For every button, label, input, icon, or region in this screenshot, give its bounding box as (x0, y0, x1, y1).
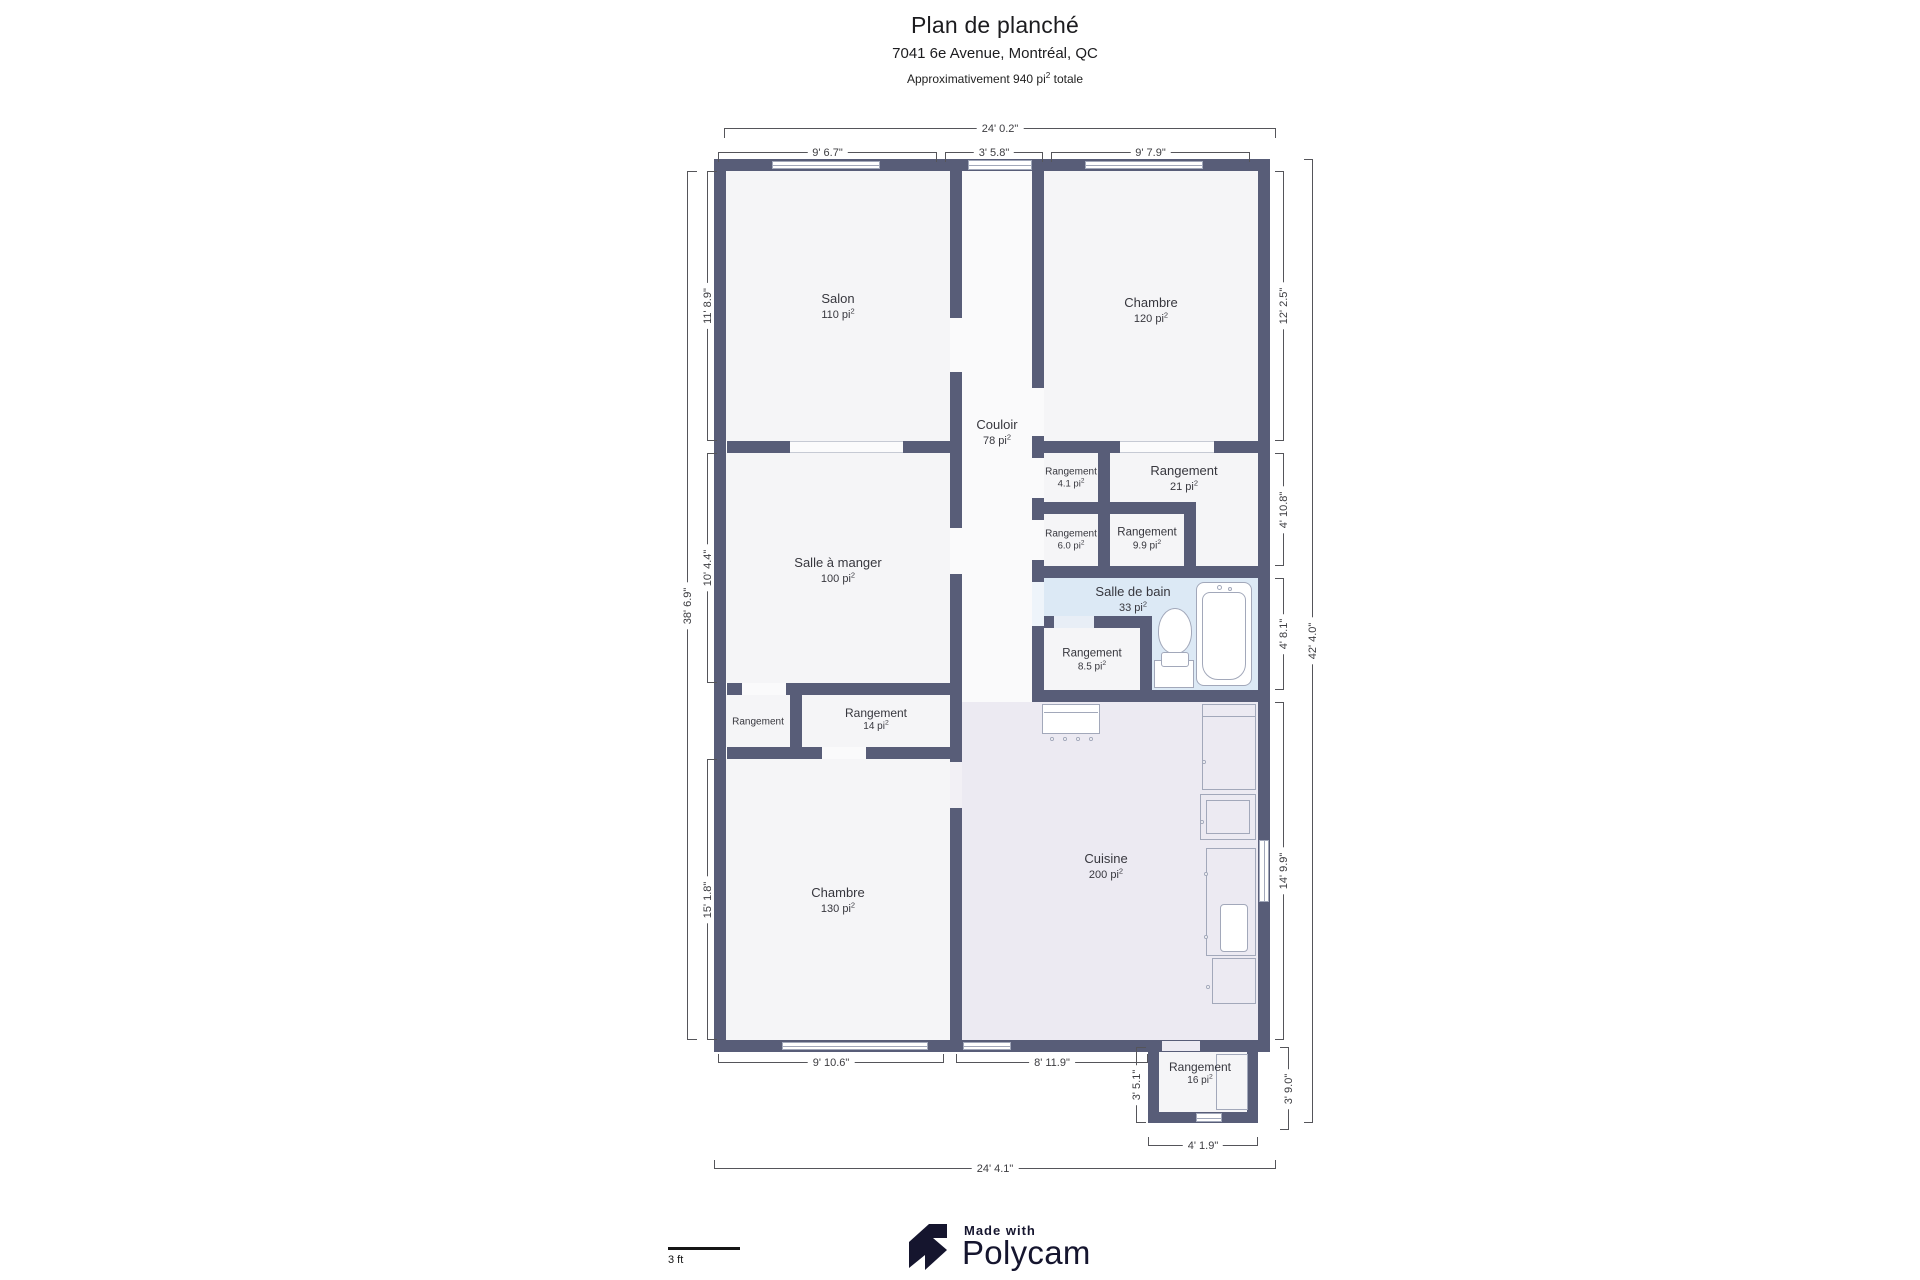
door-rangement-14 (822, 747, 866, 759)
door-rangement-4-1 (1032, 458, 1044, 498)
room-label-salle-a-manger: Salle à manger 100 pi2 (794, 555, 881, 585)
wall-rangement-9-9-haut (1110, 502, 1184, 514)
room-area: 110 pi2 (821, 309, 854, 321)
room-name: Rangement (1150, 463, 1217, 478)
window-cuisine-droite (1259, 840, 1269, 902)
room-area: 100 pi2 (794, 573, 881, 585)
dim-bottom-chambre: 9' 10.6" (718, 1062, 944, 1063)
cabinet-knob-5 (1206, 985, 1210, 989)
dimension-label: 9' 10.6" (808, 1057, 855, 1069)
toilet-tank (1161, 652, 1189, 667)
dim-bottom-total: 24' 4.1" (714, 1168, 1276, 1169)
opening-salon-salle-a-manger (790, 441, 903, 453)
scale-label: 3 ft (668, 1254, 683, 1266)
stove-knob-3 (1076, 737, 1080, 741)
door-salle-a-manger (950, 528, 962, 574)
room-area: 9.9 pi2 (1117, 541, 1176, 552)
room-name: Rangement (1045, 467, 1097, 478)
window-chambre-haut (1085, 161, 1203, 169)
room-label-salle-de-bain: Salle de bain 33 pi2 (1095, 584, 1170, 614)
room-label-rangement-4-1: Rangement 4.1 pi2 (1045, 467, 1097, 490)
passage-cuisine-annexe (1162, 1041, 1200, 1051)
door-rangement-gauche (742, 683, 786, 695)
wall-left (714, 159, 726, 1052)
stove-detail-line (1044, 712, 1098, 713)
room-name: Salle à manger (794, 555, 881, 570)
room-name: Rangement (1117, 527, 1176, 539)
wall-rangement-4-1-bas (1044, 502, 1110, 514)
dimension-label: 4' 8.1" (1278, 614, 1290, 654)
room-area: 4.1 pi2 (1045, 479, 1097, 490)
room-name: Chambre (811, 885, 864, 900)
wall-salle-de-bain-haut (1032, 566, 1258, 578)
wall-rangement-divider (790, 695, 802, 747)
dim-top-salon: 9' 6.7" (718, 152, 937, 153)
dimension-label: 9' 7.9" (1130, 147, 1170, 159)
door-annexe (1196, 1113, 1222, 1122)
toilet-bowl (1158, 608, 1192, 654)
dimension-label: 3' 5.8" (974, 147, 1014, 159)
wall-rangement-8-5-droite (1140, 616, 1152, 702)
room-label-couloir: Couloir 78 pi2 (976, 417, 1017, 447)
room-area: 130 pi2 (811, 903, 864, 915)
cabinet-knob-3 (1204, 872, 1208, 876)
dimension-label: 4' 10.8" (1278, 486, 1290, 533)
room-label-rangement-16: Rangement 16 pi2 (1169, 1060, 1231, 1086)
room-area: 200 pi2 (1084, 869, 1127, 881)
entry-opening-couloir (968, 160, 1032, 170)
dim-left-salon: 11' 8.9" (707, 171, 708, 441)
door-salle-de-bain (1032, 582, 1044, 626)
door-rangement-6-0 (1032, 520, 1044, 560)
dim-right-chambre: 12' 2.5" (1283, 171, 1284, 441)
scale-bar (668, 1247, 740, 1250)
dimension-label: 3' 9.0" (1283, 1068, 1295, 1108)
room-name: Salon (821, 291, 854, 306)
room-area: 21 pi2 (1150, 481, 1217, 493)
bathtub-drain (1228, 587, 1232, 591)
dim-top-total: 24' 0.2" (724, 128, 1276, 129)
stove-knob-1 (1050, 737, 1054, 741)
room-area: 78 pi2 (976, 435, 1017, 447)
dim-left-total: 38' 6.9" (687, 171, 688, 1040)
dim-annexe-cote: 3' 5.1" (1136, 1047, 1137, 1123)
dimension-label: 8' 11.9" (1029, 1057, 1075, 1069)
room-label-rangement-gauche: Rangement (732, 717, 784, 728)
room-area: 14 pi2 (845, 721, 907, 732)
room-name: Rangement (1169, 1060, 1231, 1074)
room-name: Rangement (1062, 648, 1121, 660)
bathtub-inner (1202, 592, 1246, 680)
dimension-label: 10' 4.4" (702, 545, 714, 592)
oven-inner (1206, 800, 1250, 834)
door-rangement-8-5 (1054, 616, 1094, 628)
room-rangement-21-leg (1196, 502, 1258, 566)
cabinet-knob-2 (1200, 820, 1204, 824)
wall-salon-partition-b (903, 441, 950, 453)
dimension-label: 24' 0.2" (977, 123, 1024, 135)
stove (1042, 704, 1100, 734)
room-name: Couloir (976, 417, 1017, 432)
dim-bottom-annexe: 4' 1.9" (1148, 1145, 1258, 1146)
dimension-label: 11' 8.9" (702, 283, 714, 329)
dimension-label: 9' 6.7" (807, 147, 847, 159)
dimension-label: 12' 2.5" (1278, 283, 1290, 330)
room-label-rangement-6-0: Rangement 6.0 pi2 (1045, 529, 1097, 552)
floor-plan-page: Plan de planché 7041 6e Avenue, Montréal… (0, 0, 1920, 1280)
room-label-salon: Salon 110 pi2 (821, 291, 854, 321)
stove-knob-4 (1089, 737, 1093, 741)
dim-bottom-cuisine: 8' 11.9" (956, 1062, 1148, 1063)
room-name: Rangement (845, 706, 907, 720)
wall-couloir-gauche (950, 171, 962, 1040)
stove-knob-2 (1063, 737, 1067, 741)
dimension-label: 3' 5.1" (1131, 1065, 1143, 1105)
room-label-cuisine: Cuisine 200 pi2 (1084, 851, 1127, 881)
room-label-rangement-14: Rangement 14 pi2 (845, 706, 907, 732)
room-name: Salle de bain (1095, 584, 1170, 599)
dim-right-cuisine: 14' 9.9" (1283, 702, 1284, 1040)
dim-left-chambre: 15' 1.8" (707, 759, 708, 1040)
room-area: 33 pi2 (1095, 602, 1170, 614)
kitchen-cabinet (1212, 958, 1256, 1004)
bathtub-faucet (1217, 585, 1222, 590)
room-area: 6.0 pi2 (1045, 541, 1097, 552)
kitchen-sink (1220, 904, 1248, 952)
window-salon (772, 161, 880, 169)
dimension-label: 15' 1.8" (702, 876, 714, 923)
room-name: Chambre (1124, 295, 1177, 310)
dim-right-total: 42' 4.0" (1312, 159, 1313, 1123)
dim-right-salle-de-bain: 4' 8.1" (1283, 578, 1284, 690)
room-label-chambre-bas: Chambre 130 pi2 (811, 885, 864, 915)
room-label-chambre-haut: Chambre 120 pi2 (1124, 295, 1177, 325)
door-chambre-bas (950, 762, 962, 808)
door-chambre-haut (1032, 388, 1044, 436)
opening-chambre-rangement-21 (1120, 441, 1214, 453)
cabinet-knob-4 (1204, 935, 1208, 939)
dim-left-salle-a-manger: 10' 4.4" (707, 453, 708, 683)
room-area: 120 pi2 (1124, 313, 1177, 325)
room-label-rangement-9-9: Rangement 9.9 pi2 (1117, 527, 1176, 552)
floor-plan: Salon 110 pi2 Chambre 120 pi2 Couloir 78… (0, 0, 1920, 1280)
room-area: 8.5 pi2 (1062, 662, 1121, 673)
dimension-label: 38' 6.9" (682, 582, 694, 629)
dim-right-rangement: 4' 10.8" (1283, 453, 1284, 566)
dimension-label: 42' 4.0" (1307, 618, 1319, 665)
room-name: Rangement (732, 717, 784, 728)
wall-salon-partition-a (727, 441, 790, 453)
polycam-logo-icon (903, 1222, 953, 1274)
brand-name: Polycam (962, 1234, 1091, 1272)
dim-top-couloir: 3' 5.8" (945, 152, 1043, 153)
door-cuisine-bas (963, 1042, 1011, 1050)
room-name: Cuisine (1084, 851, 1127, 866)
door-salon (950, 318, 962, 372)
window-chambre-bas (782, 1042, 928, 1050)
wall-rangement-9-9-droite (1184, 502, 1196, 566)
fridge-detail-line (1202, 716, 1256, 717)
dim-right-annexe: 3' 9.0" (1288, 1047, 1289, 1130)
dimension-label: 14' 9.9" (1278, 848, 1290, 895)
room-label-rangement-8-5: Rangement 8.5 pi2 (1062, 648, 1121, 673)
cabinet-knob-1 (1202, 760, 1206, 764)
dim-top-chambre: 9' 7.9" (1051, 152, 1250, 153)
wall-right (1258, 159, 1270, 1052)
room-area: 16 pi2 (1169, 1075, 1231, 1086)
dimension-label: 24' 4.1" (972, 1163, 1019, 1175)
dimension-label: 4' 1.9" (1183, 1140, 1223, 1152)
room-name: Rangement (1045, 529, 1097, 540)
room-label-rangement-21: Rangement 21 pi2 (1150, 463, 1217, 493)
